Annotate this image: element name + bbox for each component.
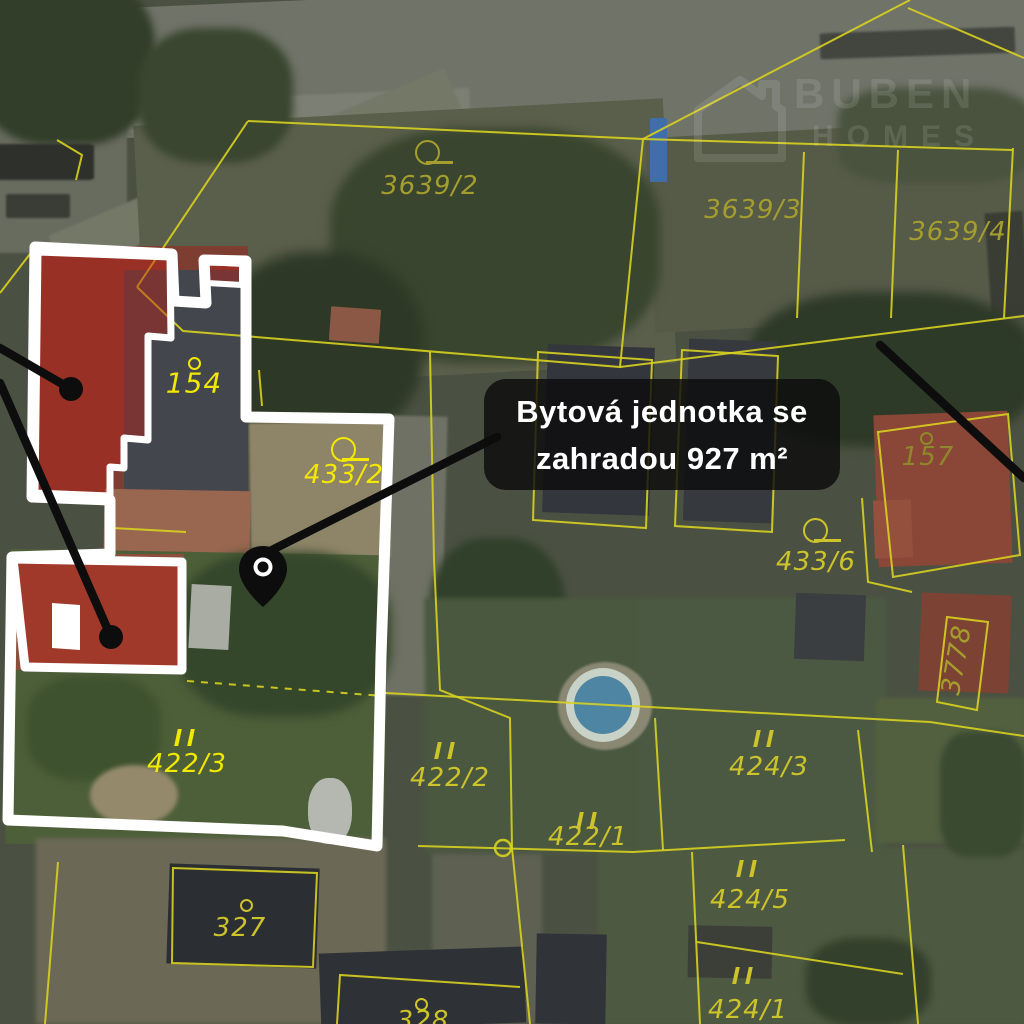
location-pin <box>239 546 287 607</box>
property-callout: Bytová jednotka se zahradou 927 m² <box>484 379 840 490</box>
brand-watermark: BUBEN HOMES <box>690 66 790 171</box>
aerial-map-view: 3639/23639/33639/4154433/2157433/6377842… <box>0 0 1024 1024</box>
brand-name: BUBEN <box>794 70 978 118</box>
brand-house-icon <box>690 66 790 166</box>
brand-subname: HOMES <box>812 120 987 154</box>
callout-line2: zahradou 927 m² <box>536 435 788 482</box>
callout-line1: Bytová jednotka se <box>516 388 808 435</box>
